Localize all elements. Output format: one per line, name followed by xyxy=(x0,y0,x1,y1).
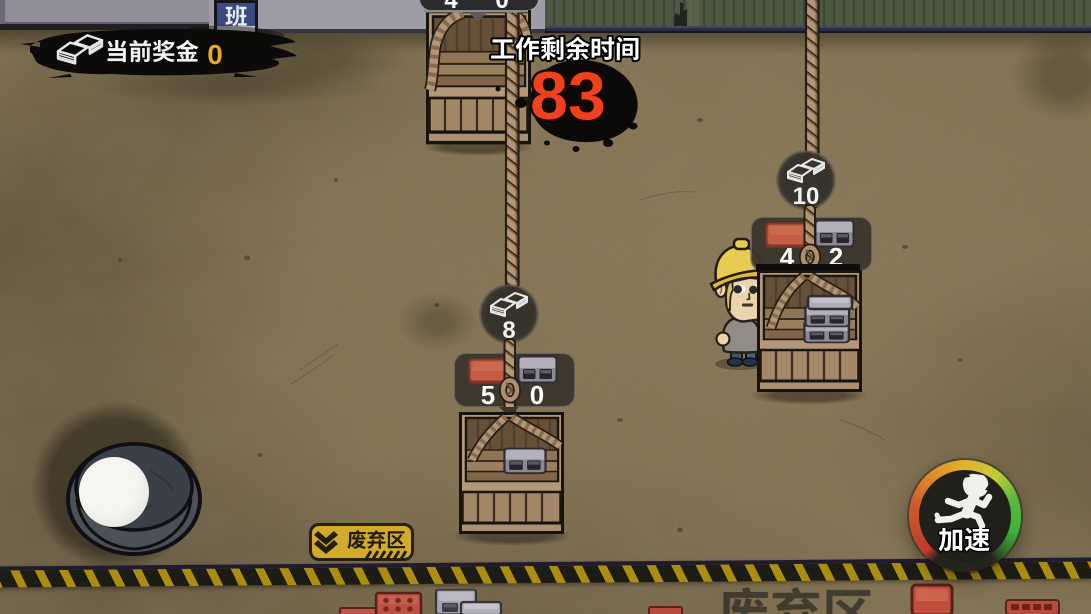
svg-text:4: 4 xyxy=(444,0,458,14)
svg-text:0: 0 xyxy=(495,0,508,14)
svg-text:0: 0 xyxy=(530,380,544,410)
svg-text:0: 0 xyxy=(207,39,223,70)
svg-text:5: 5 xyxy=(481,380,495,410)
svg-text:83: 83 xyxy=(530,58,606,134)
